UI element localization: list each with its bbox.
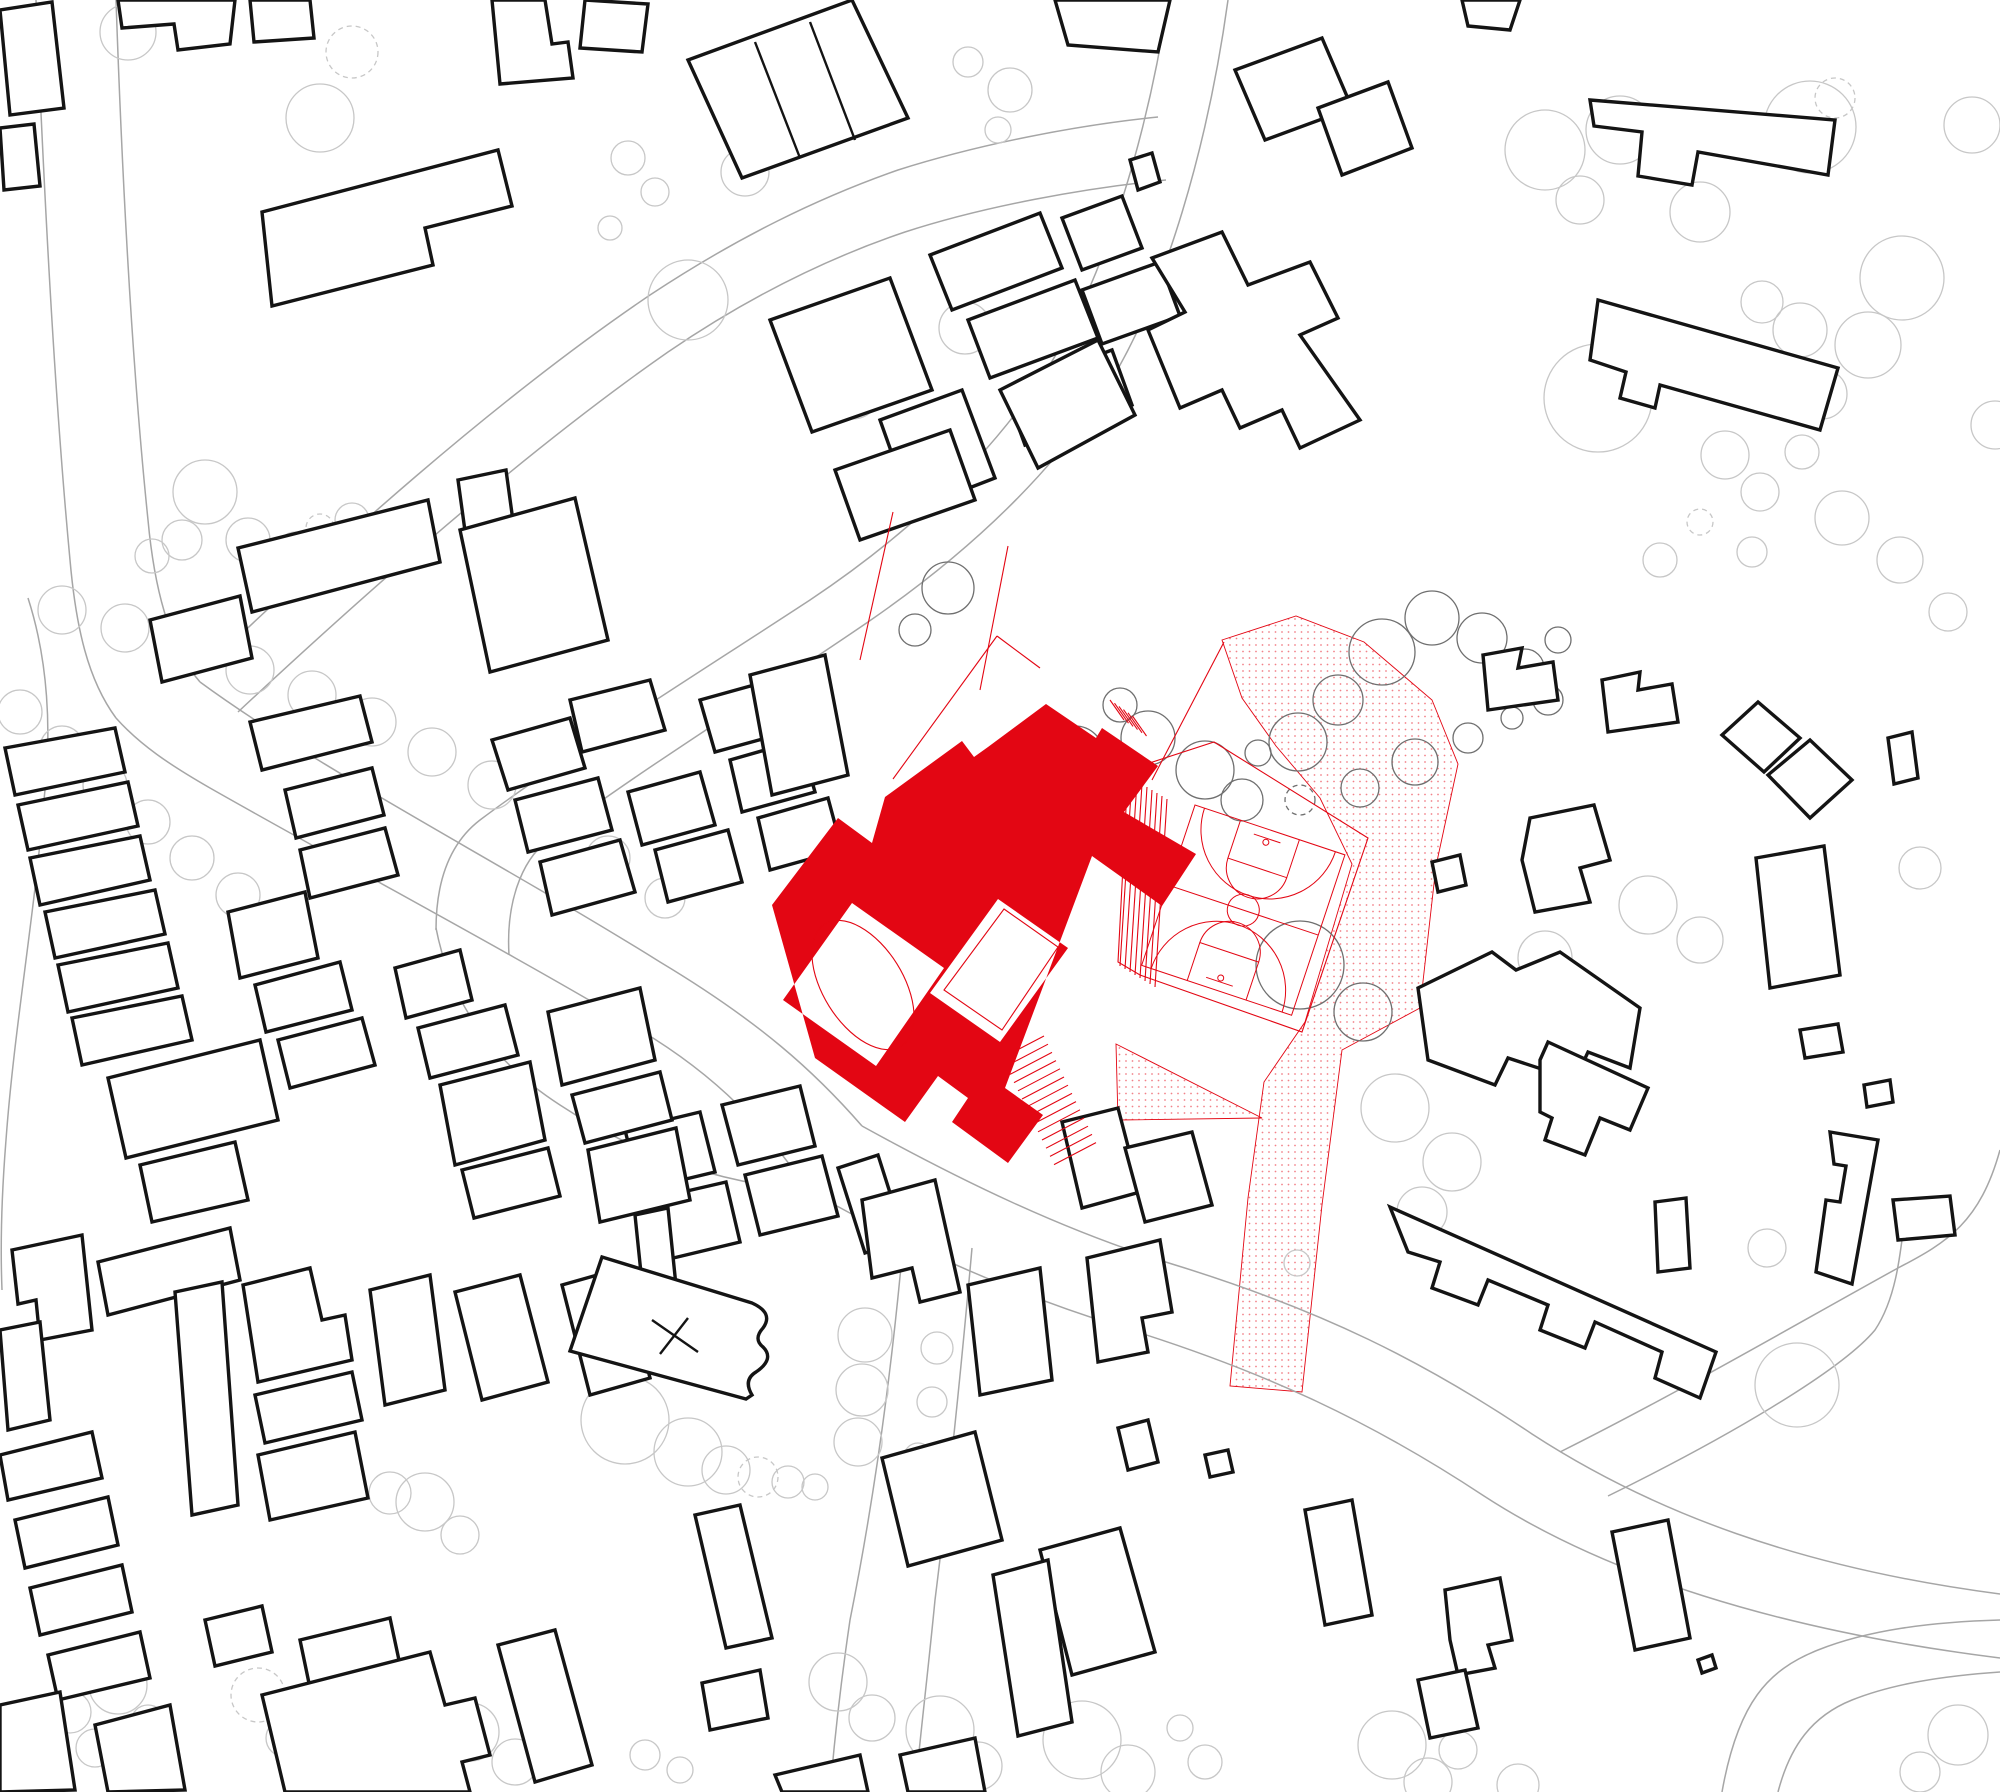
- tree: [802, 1474, 828, 1500]
- tree: [162, 520, 202, 560]
- court-marking: [1183, 808, 1336, 917]
- building: [1205, 1450, 1233, 1477]
- tree: [985, 117, 1011, 143]
- tree: [641, 178, 669, 206]
- tree: [988, 68, 1032, 112]
- building: [0, 124, 40, 190]
- tree: [369, 1472, 411, 1514]
- building: [455, 1275, 548, 1400]
- building: [418, 1005, 518, 1078]
- tree: [1103, 688, 1137, 722]
- court-marking: [1151, 903, 1304, 1012]
- tree: [809, 1653, 867, 1711]
- building: [775, 1755, 868, 1792]
- tree: [1860, 236, 1944, 320]
- building: [1864, 1080, 1893, 1107]
- tree: [1899, 847, 1941, 889]
- building: [0, 1432, 102, 1500]
- tree: [702, 1446, 750, 1494]
- stairs-hatch: [1022, 1077, 1064, 1099]
- court-marking: [1218, 858, 1287, 907]
- site-outline-line: [997, 636, 1040, 668]
- court-marking: [1228, 820, 1299, 878]
- building: [1655, 1198, 1690, 1272]
- tree: [1929, 593, 1967, 631]
- building: [118, 0, 235, 50]
- tree: [173, 460, 237, 524]
- stairs-hatch: [1014, 1061, 1056, 1083]
- tree: [1221, 779, 1263, 821]
- tree: [1188, 1745, 1222, 1779]
- building: [900, 1738, 985, 1792]
- building: [1062, 196, 1142, 270]
- site-outline-line: [1152, 642, 1224, 780]
- tree: [1677, 917, 1723, 963]
- building: [48, 1632, 150, 1700]
- tree: [1453, 723, 1483, 753]
- tree: [1900, 1752, 1940, 1792]
- tree: [0, 690, 42, 734]
- tree: [326, 26, 378, 78]
- site-plan-map: [0, 0, 2000, 1792]
- tree: [1815, 491, 1869, 545]
- building: [1522, 805, 1610, 912]
- building: [278, 1018, 375, 1088]
- building: [1055, 0, 1170, 52]
- building: [1087, 1240, 1172, 1362]
- building: [255, 962, 352, 1032]
- court-marking: [1168, 885, 1318, 935]
- tree: [772, 1466, 804, 1498]
- building: [1418, 1670, 1478, 1738]
- building: [1816, 1132, 1878, 1284]
- building: [262, 1652, 490, 1792]
- tree: [1423, 1133, 1481, 1191]
- road-line: [1, 598, 48, 1290]
- tree: [921, 1332, 953, 1364]
- tree: [1167, 1715, 1193, 1741]
- court-marking: [1200, 913, 1269, 962]
- paved-plaza: [1116, 1044, 1262, 1120]
- building: [255, 1372, 362, 1443]
- tree: [667, 1757, 693, 1783]
- tree: [1944, 97, 2000, 153]
- tree: [408, 728, 456, 776]
- tree: [849, 1695, 895, 1741]
- road-line: [1560, 1150, 2000, 1452]
- building: [1445, 1578, 1512, 1675]
- road-line: [1722, 1620, 2000, 1792]
- building: [258, 1432, 368, 1520]
- building: [15, 1497, 118, 1568]
- tree: [1361, 1074, 1429, 1142]
- court-marking: [1217, 974, 1225, 982]
- tree: [101, 604, 149, 652]
- tree: [1358, 1711, 1426, 1779]
- building: [108, 1040, 278, 1158]
- tree: [838, 1308, 892, 1362]
- tree: [1755, 1343, 1839, 1427]
- tree: [899, 614, 931, 646]
- tree: [611, 141, 645, 175]
- building: [395, 950, 472, 1018]
- building: [228, 892, 318, 978]
- building: [515, 778, 612, 852]
- tree: [1501, 707, 1523, 729]
- building: [250, 696, 372, 770]
- tree: [648, 260, 728, 340]
- road-line: [116, 0, 200, 682]
- building: [1893, 1196, 1955, 1240]
- tree: [1835, 312, 1901, 378]
- tree: [1928, 1705, 1988, 1765]
- building: [1148, 232, 1360, 448]
- building: [1612, 1520, 1690, 1650]
- building: [1590, 300, 1838, 430]
- building: [492, 718, 585, 790]
- tree: [630, 1740, 660, 1770]
- tree: [1971, 401, 2000, 449]
- building: [262, 150, 512, 306]
- tree: [1619, 876, 1677, 934]
- building: [205, 1606, 272, 1666]
- tree: [170, 836, 214, 880]
- tree: [1439, 1731, 1477, 1769]
- building: [580, 0, 648, 52]
- court-marking: [1206, 977, 1233, 986]
- building: [882, 1432, 1002, 1566]
- building: [1590, 100, 1835, 185]
- building: [1602, 672, 1678, 732]
- building: [1305, 1500, 1372, 1625]
- building: [745, 1156, 838, 1235]
- court-marking: [1262, 838, 1270, 846]
- tree: [1545, 627, 1571, 653]
- tree: [1687, 509, 1713, 535]
- building: [95, 1705, 185, 1792]
- building: [300, 828, 398, 898]
- tree: [441, 1516, 479, 1554]
- basketball-court: [1142, 805, 1345, 1015]
- tree: [1505, 110, 1585, 190]
- building: [1800, 1024, 1843, 1058]
- building: [250, 0, 314, 42]
- building: [498, 1630, 592, 1782]
- court-marking: [1254, 834, 1281, 843]
- tree: [1701, 431, 1749, 479]
- building: [0, 1322, 50, 1430]
- building: [655, 830, 742, 902]
- building: [1483, 648, 1558, 710]
- building: [30, 1565, 132, 1635]
- building: [1888, 732, 1918, 784]
- tree: [834, 1418, 882, 1466]
- court-marking: [1187, 943, 1258, 1001]
- tree: [1245, 740, 1271, 766]
- tree: [1737, 537, 1767, 567]
- building: [440, 1062, 545, 1165]
- tree: [1741, 281, 1783, 323]
- tree: [1497, 1764, 1539, 1792]
- building: [540, 840, 635, 915]
- building: [140, 1142, 248, 1222]
- tree: [1877, 537, 1923, 583]
- tree: [1741, 473, 1779, 511]
- building: [862, 1180, 960, 1302]
- tree: [1176, 741, 1234, 799]
- tree: [1748, 1229, 1786, 1267]
- building: [1462, 0, 1520, 30]
- tree: [1556, 176, 1604, 224]
- building: [968, 1268, 1052, 1395]
- building: [0, 1692, 75, 1792]
- building: [370, 1275, 445, 1405]
- building: [1432, 855, 1466, 892]
- building: [285, 768, 384, 838]
- building: [695, 1505, 772, 1648]
- building: [1125, 1132, 1212, 1222]
- building: [1418, 952, 1640, 1085]
- tree: [598, 216, 622, 240]
- building: [1130, 153, 1160, 190]
- tree: [1815, 78, 1855, 118]
- tree: [1670, 182, 1730, 242]
- building: [570, 680, 665, 752]
- tree: [654, 1418, 722, 1486]
- building: [1118, 1420, 1158, 1470]
- tree: [917, 1387, 947, 1417]
- tree: [1785, 435, 1819, 469]
- building: [460, 498, 608, 672]
- tree: [286, 84, 354, 152]
- building: [722, 1086, 815, 1165]
- tree: [922, 562, 974, 614]
- building: [150, 596, 252, 682]
- building: [628, 772, 715, 845]
- tree: [953, 47, 983, 77]
- building: [238, 500, 440, 612]
- tree: [836, 1364, 888, 1416]
- tree: [1643, 543, 1677, 577]
- stairs-hatch: [1018, 1069, 1060, 1091]
- building: [243, 1268, 352, 1382]
- road-line: [1778, 1672, 2000, 1792]
- tree: [1405, 591, 1459, 645]
- building: [548, 988, 655, 1085]
- site-plan-svg: [0, 0, 2000, 1792]
- building: [175, 1282, 238, 1515]
- building: [1756, 846, 1840, 988]
- stairs-hatch: [1026, 1085, 1068, 1107]
- tree: [38, 586, 86, 634]
- building: [702, 1670, 768, 1730]
- site-outline-line: [980, 546, 1008, 690]
- building: [1698, 1655, 1716, 1673]
- tree: [738, 1457, 778, 1497]
- road-line: [1608, 1215, 1905, 1496]
- building: [835, 430, 975, 540]
- building: [0, 2, 64, 115]
- building: [492, 0, 573, 84]
